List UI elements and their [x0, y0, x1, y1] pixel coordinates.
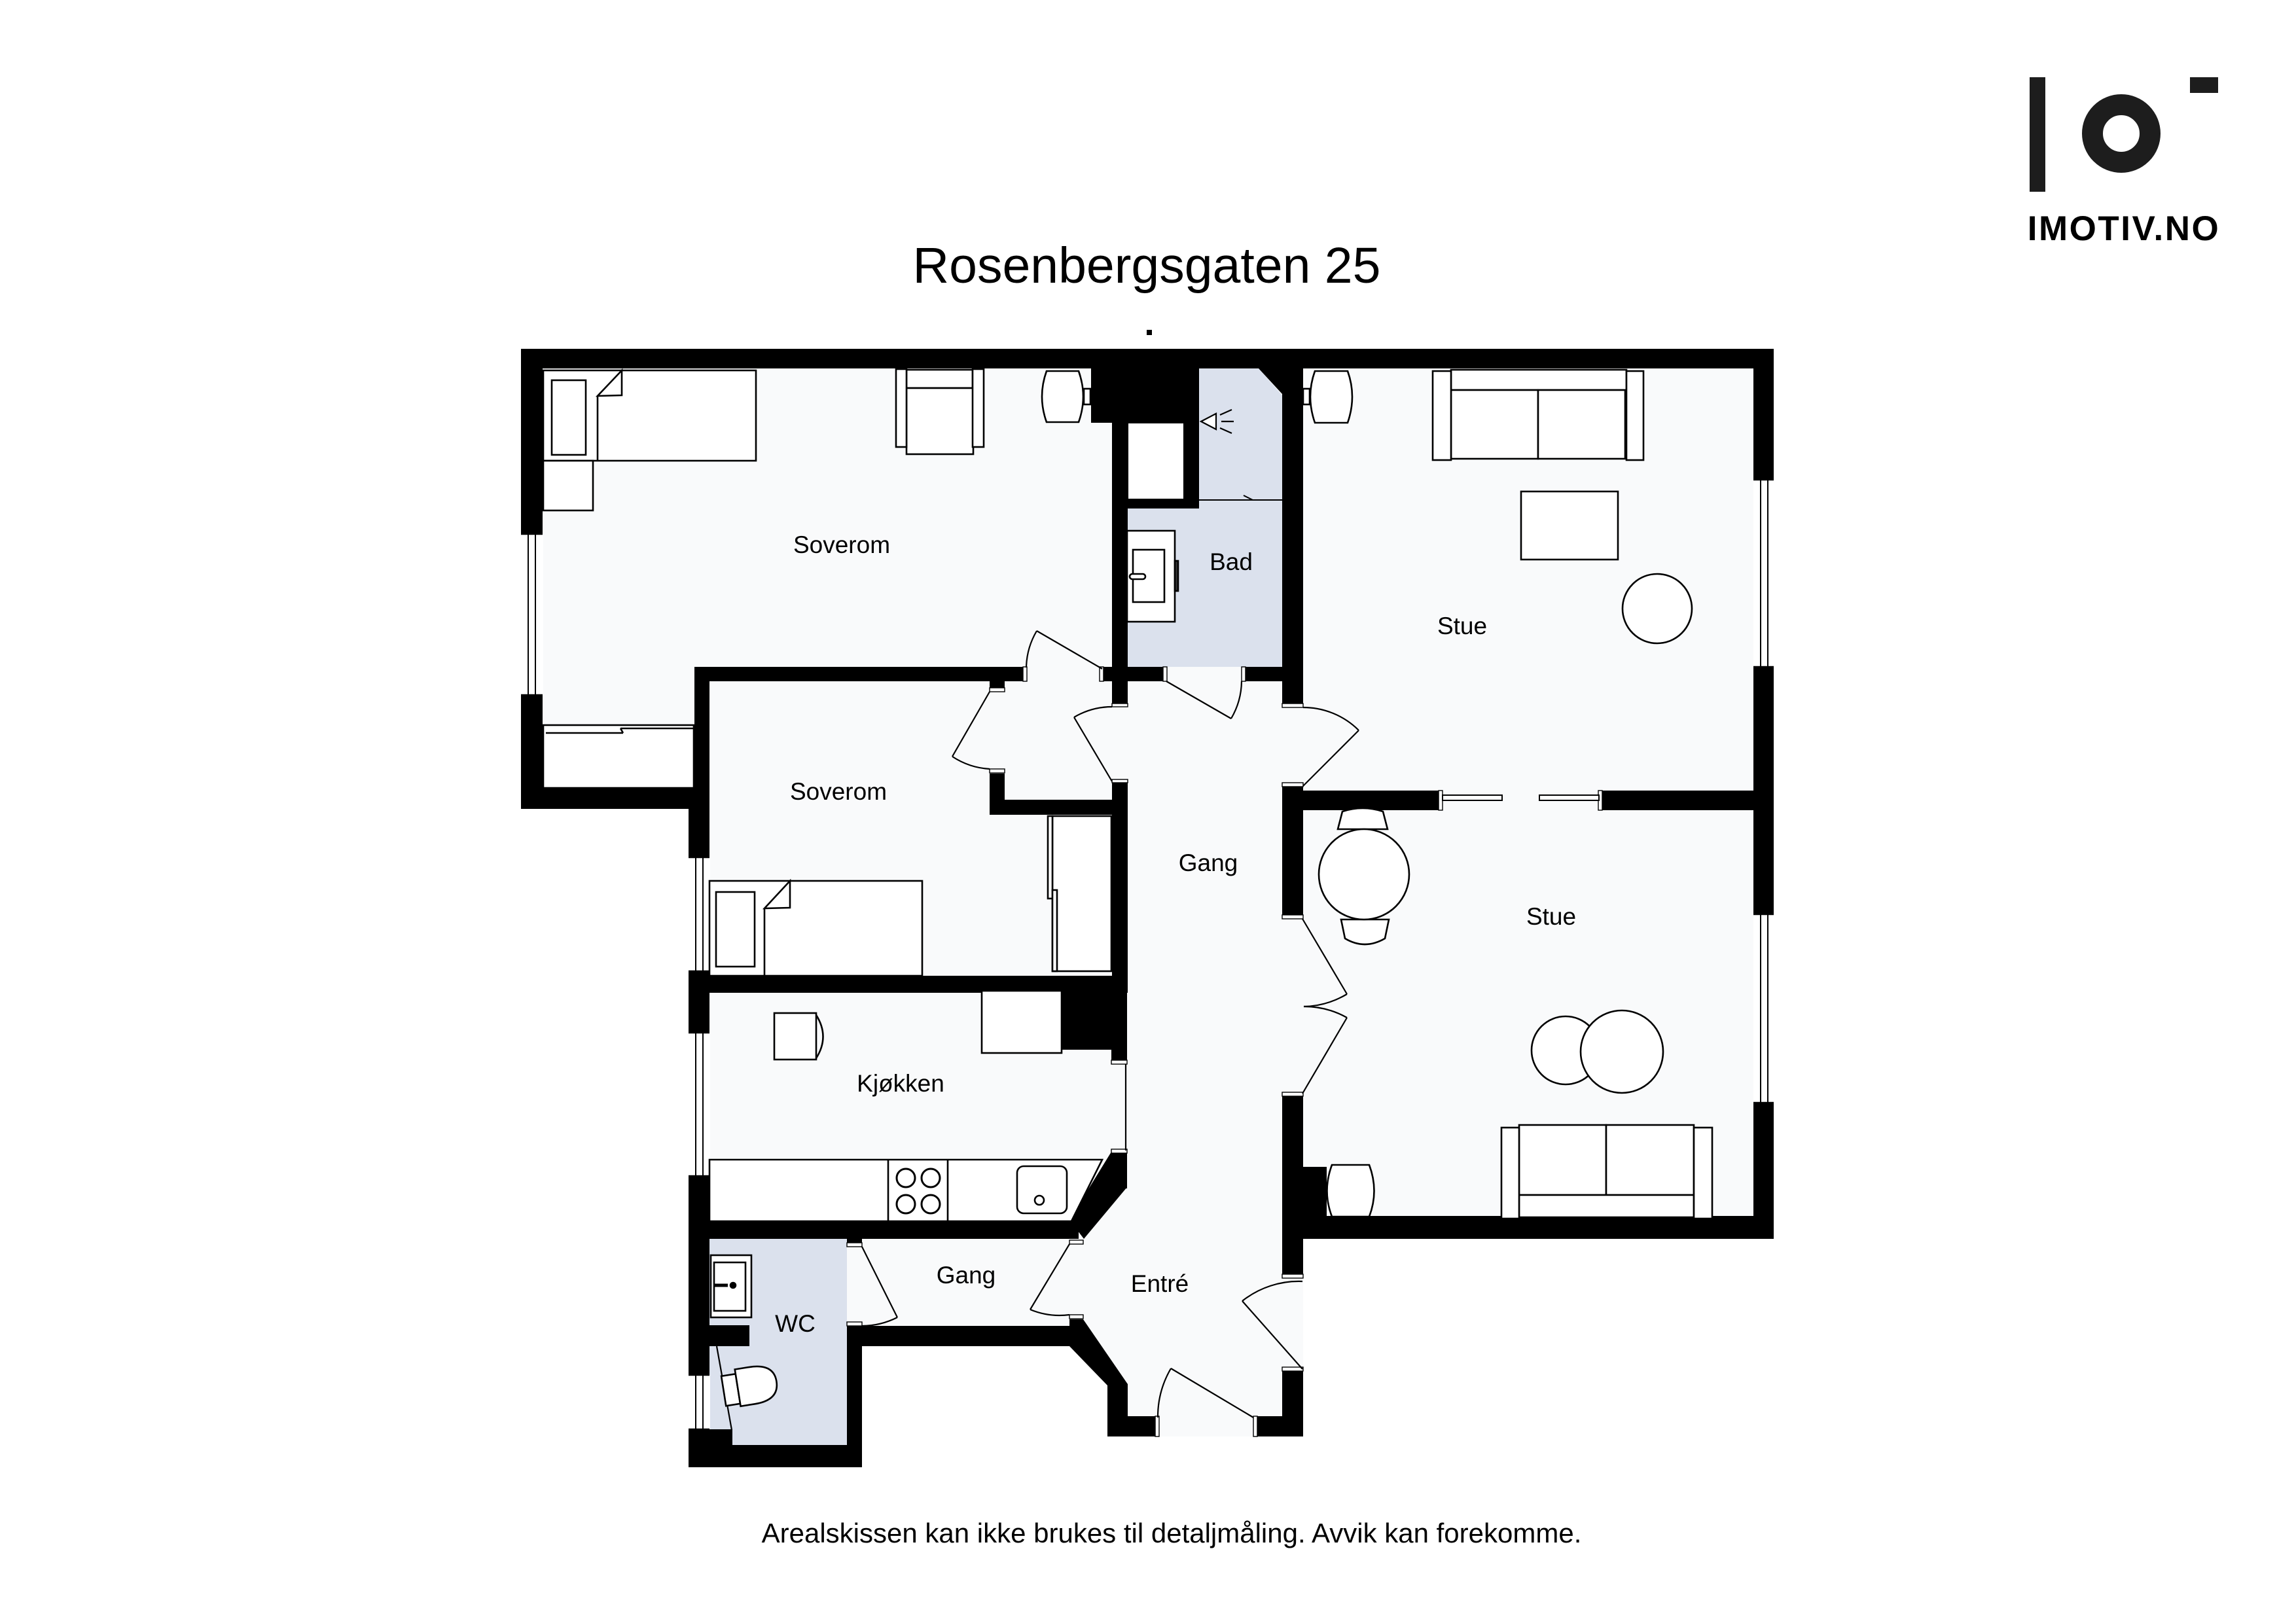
svg-text:Stue: Stue [1526, 903, 1576, 930]
svg-text:IMOTIV.NO: IMOTIV.NO [2028, 209, 2220, 248]
svg-text:Soverom: Soverom [793, 531, 890, 558]
svg-text:Arealskissen kan ikke brukes t: Arealskissen kan ikke brukes til detaljm… [762, 1518, 1582, 1548]
svg-text:Entré: Entré [1131, 1270, 1189, 1297]
svg-text:Gang: Gang [937, 1262, 996, 1289]
svg-text:Stue: Stue [1437, 613, 1487, 639]
svg-text:Rosenbergsgaten 25: Rosenbergsgaten 25 [913, 238, 1381, 294]
svg-text:Soverom: Soverom [790, 778, 887, 805]
svg-text:Gang: Gang [1179, 849, 1238, 876]
svg-text:Kjøkken: Kjøkken [857, 1070, 944, 1097]
svg-text:Bad: Bad [1210, 548, 1253, 575]
svg-text:WC: WC [775, 1310, 816, 1337]
